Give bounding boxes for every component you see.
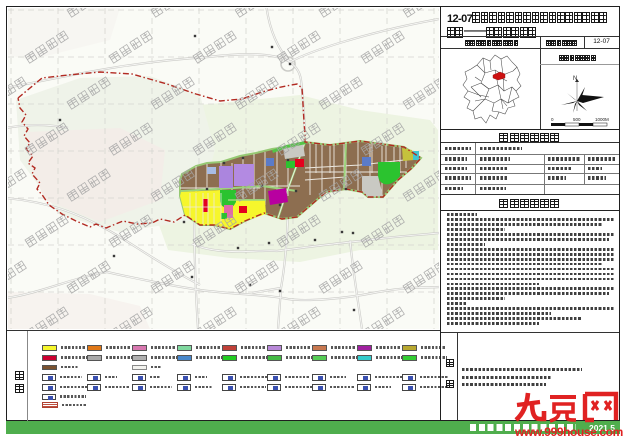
- svg-text:0: 0: [551, 117, 554, 122]
- svg-text:www.999house.com: www.999house.com: [514, 425, 623, 439]
- svg-text:500: 500: [573, 117, 581, 122]
- svg-text:1000M: 1000M: [595, 117, 609, 122]
